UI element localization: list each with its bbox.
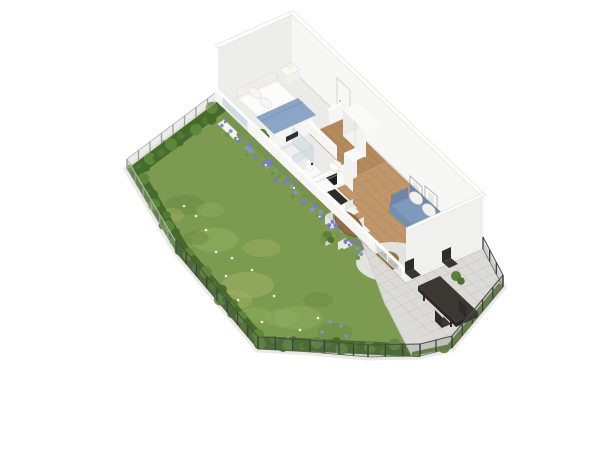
lavender-flower bbox=[336, 233, 340, 237]
daisy-flower bbox=[261, 321, 264, 324]
lavender-flower bbox=[265, 159, 269, 163]
hedge-bush bbox=[174, 228, 180, 234]
daisy-flower bbox=[273, 295, 276, 298]
lavender-flower bbox=[277, 175, 281, 179]
daisy-flower bbox=[231, 257, 234, 260]
lavender-flower bbox=[319, 210, 324, 215]
lavender-flower bbox=[266, 166, 269, 169]
lavender-flower bbox=[273, 178, 278, 183]
lavender-flower bbox=[237, 132, 242, 137]
floorplan-3d-render bbox=[0, 0, 600, 450]
hedge-bush bbox=[193, 118, 199, 124]
grass-patch bbox=[183, 231, 209, 245]
hedge-bush bbox=[190, 124, 202, 136]
violet-flower bbox=[344, 334, 347, 337]
daisy-flower bbox=[215, 251, 218, 254]
lavender-flower bbox=[271, 172, 275, 176]
grass-patch bbox=[303, 292, 333, 308]
bedside-lamp bbox=[288, 64, 292, 68]
hedge-bush bbox=[206, 115, 216, 125]
grass-patch bbox=[243, 239, 281, 257]
lavender-flower bbox=[348, 244, 351, 247]
lavender-flower bbox=[347, 236, 351, 240]
lavender-flower bbox=[302, 201, 306, 205]
terrace-bush bbox=[457, 277, 465, 285]
lavender-flower bbox=[248, 148, 253, 153]
lavender-flower bbox=[302, 194, 307, 199]
daisy-flower bbox=[251, 269, 254, 272]
white-flower bbox=[293, 187, 295, 189]
lavender-flower bbox=[306, 198, 309, 201]
white-flower bbox=[347, 241, 349, 243]
lavender-flower bbox=[327, 223, 332, 228]
hedge-bush bbox=[165, 138, 177, 150]
hedge-bush bbox=[153, 155, 159, 161]
lavender-flower bbox=[294, 191, 298, 195]
lavender-flower bbox=[290, 194, 295, 199]
lavender-flower bbox=[355, 255, 360, 260]
violet-flower bbox=[339, 324, 342, 327]
grass-patch bbox=[265, 309, 299, 327]
daisy-flower bbox=[299, 329, 302, 332]
lavender-flower bbox=[355, 246, 359, 250]
lavender-flower bbox=[319, 217, 323, 221]
hedge-bush bbox=[178, 140, 184, 146]
lavender-flower bbox=[323, 214, 326, 217]
grass-patch bbox=[196, 203, 224, 217]
lavender-flower bbox=[244, 146, 249, 151]
plant-foliage bbox=[319, 236, 326, 243]
daisy-flower bbox=[195, 215, 198, 218]
daisy-flower bbox=[183, 205, 186, 208]
lavender-flower bbox=[229, 129, 233, 133]
lavender-flower bbox=[331, 227, 334, 230]
lavender-flower bbox=[331, 220, 335, 224]
lavender-flower bbox=[310, 207, 315, 212]
lavender-flower bbox=[220, 124, 224, 128]
lavender-flower bbox=[274, 169, 277, 172]
lavender-flower bbox=[285, 178, 290, 183]
basin-tap bbox=[311, 163, 313, 165]
daisy-flower bbox=[205, 229, 208, 232]
lavender-flower bbox=[359, 252, 363, 256]
violet-flower bbox=[328, 320, 331, 323]
white-flower bbox=[265, 164, 267, 166]
plant-foliage bbox=[328, 237, 334, 243]
entry-door-handle bbox=[339, 100, 341, 102]
lavender-flower bbox=[246, 153, 249, 156]
hedge-bush bbox=[157, 149, 165, 157]
lavender-flower bbox=[254, 156, 258, 160]
daisy-flower bbox=[317, 317, 320, 320]
violet-flower bbox=[320, 330, 323, 333]
lavender-flower bbox=[241, 137, 244, 140]
lavender-flower bbox=[282, 182, 285, 185]
lavender-flower bbox=[237, 140, 241, 144]
lavender-flower bbox=[225, 132, 230, 137]
daisy-flower bbox=[225, 275, 228, 278]
lavender-flower bbox=[340, 230, 343, 233]
lavender-flower bbox=[258, 153, 261, 156]
fence-mesh bbox=[368, 344, 420, 357]
hedge-bush bbox=[163, 211, 171, 219]
lavender-flower bbox=[299, 198, 302, 201]
lavender-flower bbox=[350, 239, 355, 244]
